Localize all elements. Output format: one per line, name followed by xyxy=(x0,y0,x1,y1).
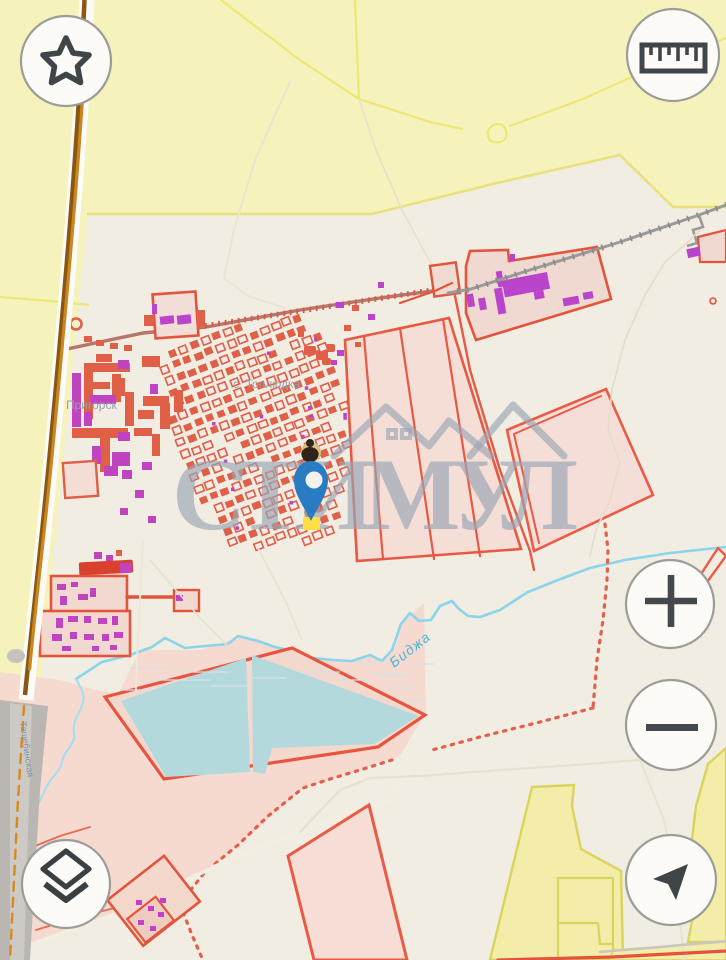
svg-text:СТИМУЛ: СТИМУЛ xyxy=(172,438,578,552)
svg-text:с. Топлюдка: с. Топлюдка xyxy=(233,377,300,391)
svg-text:Пригорск: Пригорск xyxy=(66,398,117,412)
